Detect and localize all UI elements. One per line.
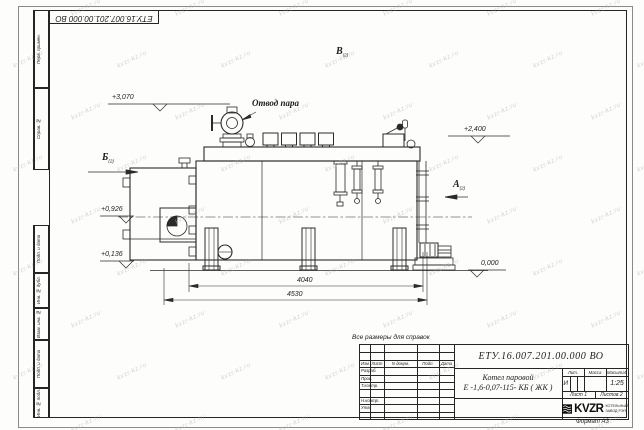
view-arrows: [88, 170, 468, 199]
level-gauges: [334, 161, 383, 206]
view-letter: В: [336, 46, 343, 57]
kvzr-logo-icon: [562, 403, 572, 415]
product-name-line1: Котел паровой: [483, 373, 534, 383]
revision-col-header: Дата: [439, 360, 454, 367]
title-block-gridline: [454, 398, 562, 399]
signature-row-label: Т.контр.: [360, 382, 385, 389]
document-number: ЕТУ.16.007.201.00.000 ВО: [454, 345, 628, 369]
sheets-total: Листов 2: [595, 391, 628, 398]
revision-col-header: Изм: [360, 360, 370, 367]
signature-row-label: Н.контр.: [360, 397, 385, 404]
format-label: Формат А3: [576, 419, 609, 425]
boiler-shell: [130, 147, 420, 260]
product-name-line2: Е -1,6-0,07-115- КБ ( ЖК ): [464, 383, 553, 393]
feed-pump: [413, 243, 455, 270]
properties-header: Масса: [584, 368, 606, 376]
company-name-line2: ЗАВОД РЭП: [605, 409, 628, 413]
view-sheet-ref: (2): [460, 185, 466, 190]
view-sheet-ref: (2): [343, 52, 349, 57]
steam-outlet-leader: [242, 112, 256, 120]
dimension-value: 4040: [297, 277, 313, 284]
product-name: Котел паровой Е -1,6-0,07-115- КБ ( ЖК ): [454, 368, 562, 398]
support-legs: [203, 228, 408, 270]
view-label-v: В(2): [336, 46, 348, 57]
revision-col-header: N докум.: [384, 360, 417, 367]
revision-col-header: Подп.: [417, 360, 439, 367]
view-letter: А: [453, 179, 460, 190]
elevation-mark: 0,000: [481, 260, 499, 267]
elevation-marks-symbols: [100, 104, 510, 277]
company-cell: KVZR КОТЕЛЬНЫЙ ЗАВОД РЭП: [562, 398, 628, 419]
title-block: Изм Лист N докум. Подп. Дата Разраб. Про…: [359, 344, 629, 420]
revision-col-header: Лист: [370, 360, 384, 367]
downpipe: [416, 161, 429, 243]
title-block-gridline: [360, 412, 454, 413]
blueprint-page: kvzr-kz.rukvzr-kz.rukvzr-kz.rukvzr-kz.ru…: [0, 0, 644, 430]
steam-outlet-label: Отвод пара: [252, 98, 299, 108]
elevation-mark: +0,926: [101, 206, 123, 213]
view-label-b: Б(2): [102, 152, 114, 163]
company-logo-text: KVZR: [574, 403, 603, 415]
signature-row-label: [360, 389, 385, 396]
title-block-gridline: [570, 376, 571, 391]
sheet-number: Лист 1: [562, 391, 595, 398]
title-block-gridline: [360, 352, 454, 353]
scale-value: 1:25: [606, 376, 628, 391]
liter-value: И: [562, 376, 570, 391]
lever-safety-valve: [383, 120, 415, 148]
drum-hatches: [263, 133, 334, 147]
reference-note: Все размеры для справок: [352, 334, 430, 341]
elevation-mark: +2,400: [464, 126, 486, 133]
signature-row-label: Пров.: [360, 375, 385, 382]
properties-header: Масштаб: [606, 368, 628, 376]
dimension-value: 4530: [287, 291, 303, 298]
elevation-mark: +0,136: [101, 251, 123, 258]
company-name: КОТЕЛЬНЫЙ ЗАВОД РЭП: [605, 404, 628, 412]
elevation-mark: +3,070: [112, 94, 134, 101]
title-block-gridline: [577, 376, 578, 391]
signature-row-label: Разраб.: [360, 367, 385, 374]
view-label-a: А(2): [453, 179, 465, 190]
signature-row-label: Утв.: [360, 404, 385, 411]
properties-header: Лит.: [562, 368, 584, 376]
view-sheet-ref: (2): [108, 158, 114, 163]
steam-safety-valve: [212, 107, 255, 147]
